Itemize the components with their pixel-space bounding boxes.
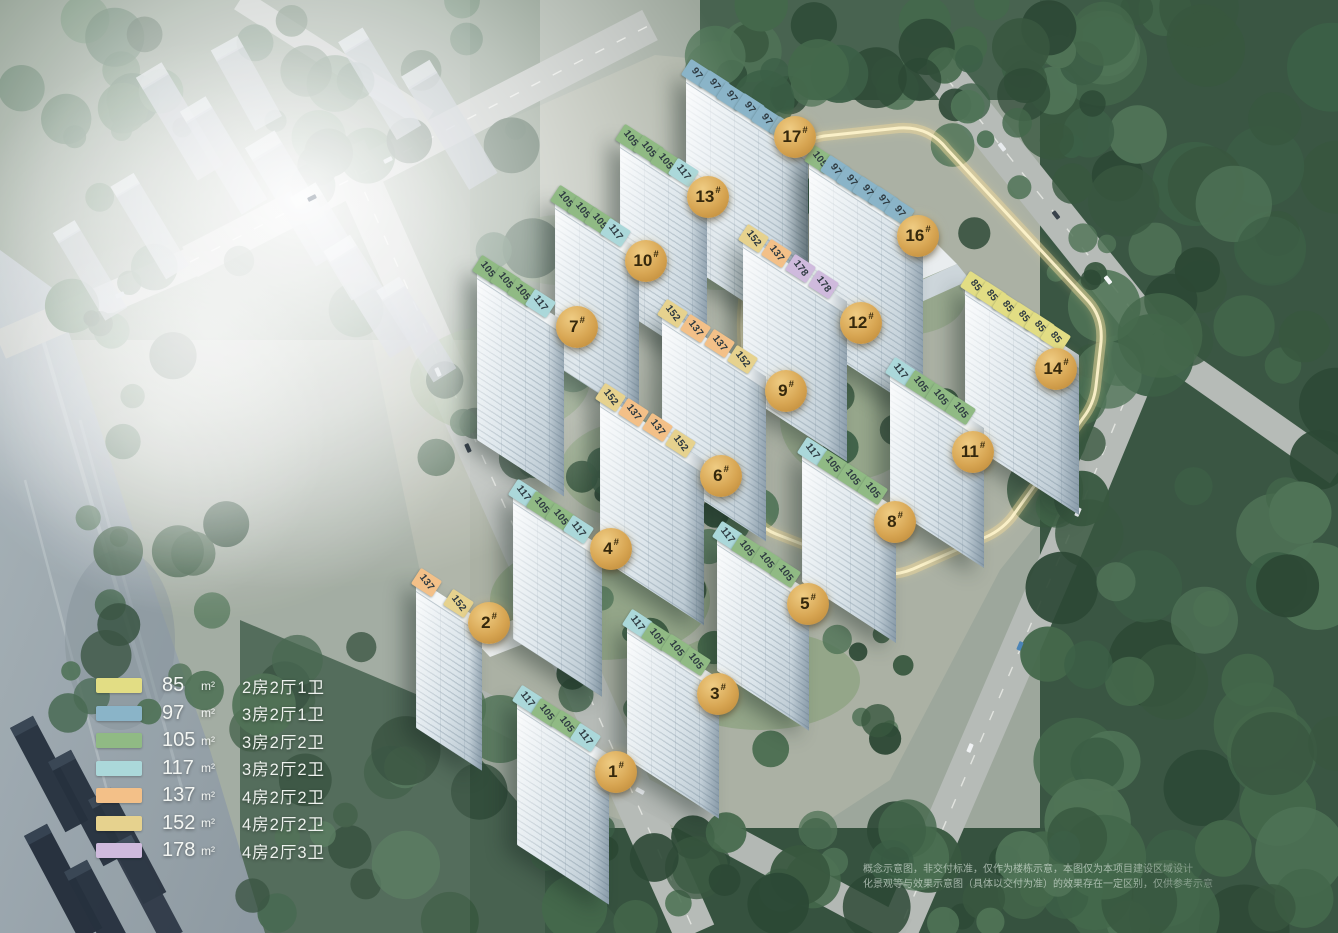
building-badge-8[interactable]: 8# [874,501,916,543]
unit-legend: 85 m² 2房2厅1卫 97 m² 3房2厅1卫 105 m² 3房2厅2卫 … [96,676,325,861]
legend-layout: 3房2厅2卫 [242,756,325,780]
building-badge-16[interactable]: 16# [897,215,939,257]
building-badge-10[interactable]: 10# [625,240,667,282]
legend-item-97: 97 m² 3房2厅1卫 [96,704,325,724]
legend-unit: m² [201,844,215,858]
legend-layout: 4房2厅2卫 [242,784,325,808]
legend-area: 178 [162,839,199,862]
building-badge-7[interactable]: 7# [556,306,598,348]
legend-layout: 4房2厅2卫 [242,811,325,835]
legend-area: 137 [162,784,199,807]
legend-layout: 3房2厅1卫 [242,701,325,725]
building-badge-14[interactable]: 14# [1035,348,1077,390]
legend-unit: m² [201,706,215,720]
disclaimer-line-1: 概念示意图，非交付标准，仅作为楼栋示意，本图仅为本项目建设区域设计 [863,863,1338,878]
legend-unit: m² [201,816,215,830]
legend-unit: m² [201,679,215,693]
disclaimer-line-2: 化景观等与效果示意图（具体以交付为准）的效果存在一定区别，仅供参考示意 [863,878,1338,893]
legend-swatch [96,678,142,693]
legend-layout: 4房2厅3卫 [242,839,325,863]
legend-area: 105 [162,729,199,752]
legend-item-178: 178 m² 4房2厅3卫 [96,841,325,861]
legend-swatch [96,761,142,776]
legend-item-137: 137 m² 4房2厅2卫 [96,786,325,806]
building-badge-9[interactable]: 9# [765,370,807,412]
legend-area: 97 [162,702,199,725]
legend-layout: 2房2厅1卫 [242,674,325,698]
building-badge-1[interactable]: 1# [595,751,637,793]
legend-item-85: 85 m² 2房2厅1卫 [96,676,325,696]
legend-area: 117 [162,757,199,780]
disclaimer-text: 概念示意图，非交付标准，仅作为楼栋示意，本图仅为本项目建设区域设计 化景观等与效… [863,863,1338,892]
legend-swatch [96,816,142,831]
legend-unit: m² [201,734,215,748]
legend-item-117: 117 m² 3房2厅2卫 [96,759,325,779]
building-badge-17[interactable]: 17# [774,116,816,158]
building-badge-6[interactable]: 6# [700,455,742,497]
building-badge-5[interactable]: 5# [787,583,829,625]
building-badge-3[interactable]: 3# [697,673,739,715]
building-badge-12[interactable]: 12# [840,302,882,344]
building-badge-4[interactable]: 4# [590,528,632,570]
legend-unit: m² [201,761,215,775]
site-plan-rendering: 9797979797971051051051171059797979797105… [0,0,1338,933]
legend-area: 85 [162,674,199,697]
legend-area: 152 [162,812,199,835]
legend-item-105: 105 m² 3房2厅2卫 [96,731,325,751]
building-badge-11[interactable]: 11# [952,431,994,473]
legend-swatch [96,733,142,748]
legend-swatch [96,706,142,721]
legend-layout: 3房2厅2卫 [242,729,325,753]
legend-swatch [96,788,142,803]
building-badge-13[interactable]: 13# [687,176,729,218]
legend-unit: m² [201,789,215,803]
legend-swatch [96,843,142,858]
building-badge-2[interactable]: 2# [468,602,510,644]
legend-item-152: 152 m² 4房2厅2卫 [96,814,325,834]
